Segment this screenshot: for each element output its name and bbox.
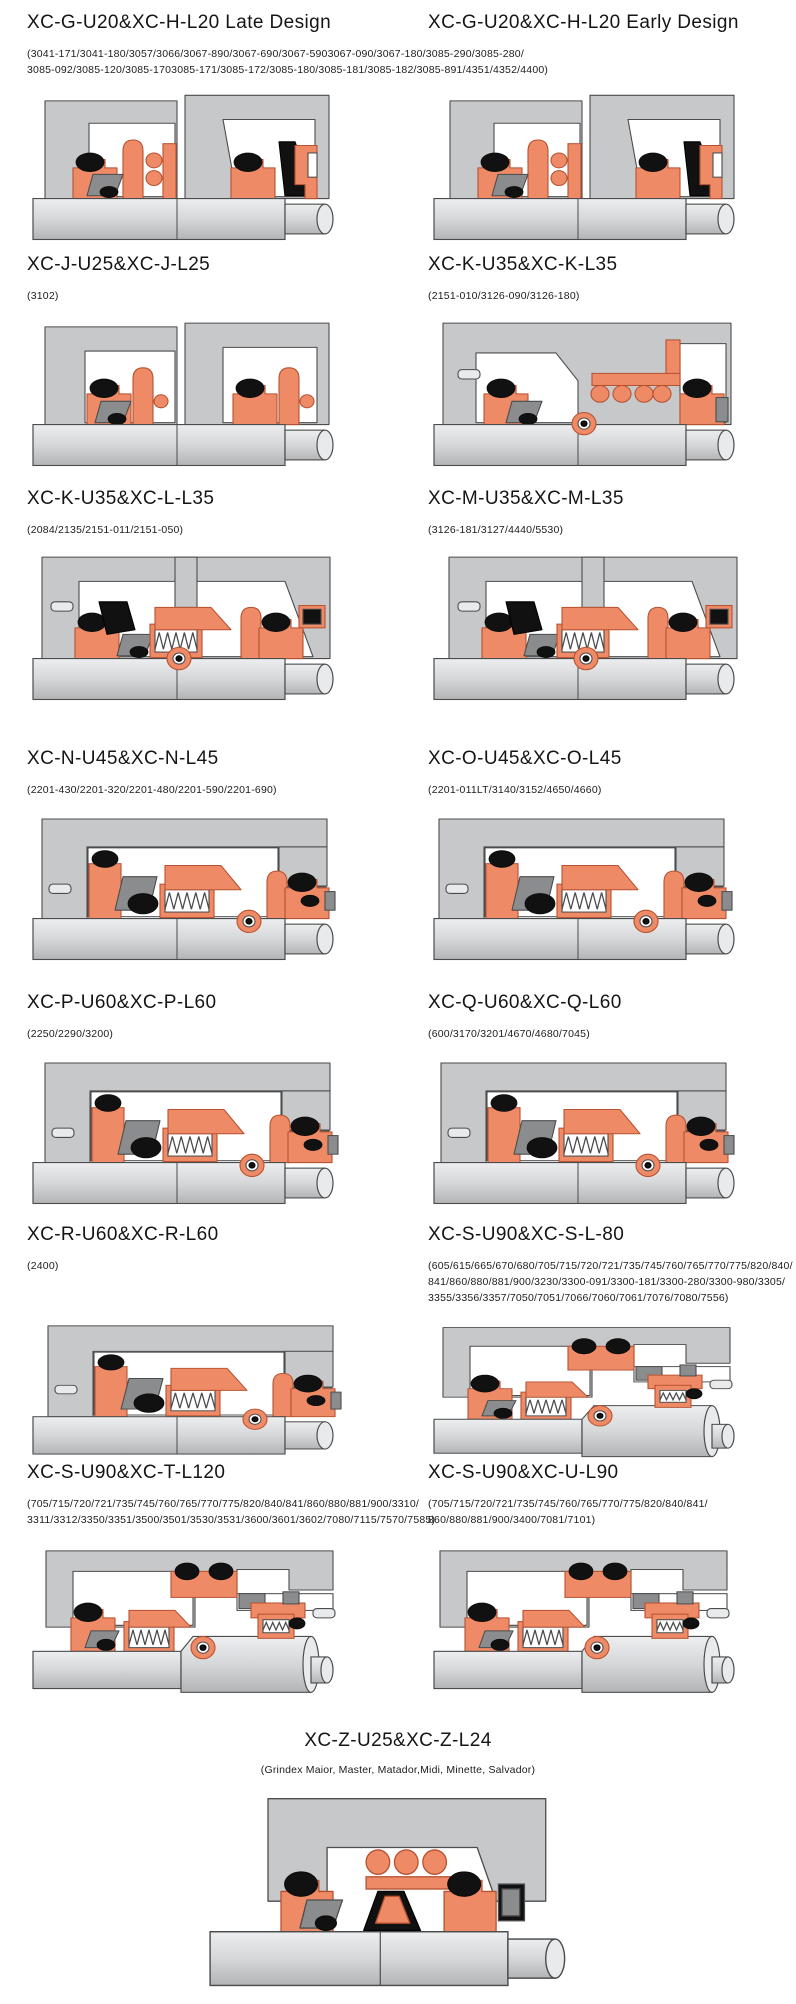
panel-title: XC-G-U20&XC-H-L20 Late Design: [27, 12, 407, 34]
seal-cross-section-diagram: [27, 546, 357, 706]
panel-title: XC-S-U90&XC-U-L90: [428, 1462, 796, 1484]
panel-title: XC-J-U25&XC-J-L25: [27, 254, 407, 276]
panel-part-numbers: (2201-430/2201-320/2201-480/2201-590/220…: [27, 782, 407, 798]
part-numbers-line: (Grindex Maior, Master, Matador,Midi, Mi…: [0, 1762, 796, 1778]
part-numbers-line: (2400): [27, 1258, 407, 1274]
panel-part-numbers: (2201-011LT/3140/3152/4650/4660): [428, 782, 796, 798]
panel-part-numbers: (605/615/665/670/680/705/715/720/721/735…: [428, 1258, 796, 1306]
seal-cross-section-diagram: [428, 86, 758, 246]
panel-title: XC-N-U45&XC-N-L45: [27, 748, 407, 770]
panel-part-numbers: (3041-171/3041-180/3057/3066/3067-890/30…: [27, 46, 407, 78]
seal-panel-right: XC-O-U45&XC-O-L45(2201-011LT/3140/3152/4…: [428, 748, 796, 966]
panel-title: XC-G-U20&XC-H-L20 Early Design: [428, 12, 796, 34]
seal-cross-section-diagram: [428, 312, 758, 472]
part-numbers-line: 3311/3312/3350/3351/3500/3501/3530/3531/…: [27, 1512, 407, 1528]
seal-cross-section-diagram: [27, 86, 357, 246]
seal-panel-left: XC-N-U45&XC-N-L45(2201-430/2201-320/2201…: [27, 748, 407, 966]
seal-panel-right: XC-S-U90&XC-U-L90(705/715/720/721/735/74…: [428, 1462, 796, 1696]
seal-cross-section-diagram: [428, 1536, 758, 1696]
part-numbers-line: (3041-171/3041-180/3057/3066/3067-890/30…: [27, 46, 407, 62]
panel-part-numbers: (2084/2135/2151-011/2151-050): [27, 522, 407, 538]
part-numbers-line: 3355/3356/3357/7050/7051/7066/7060/7061/…: [428, 1290, 796, 1306]
part-numbers-line: 3085-092/3085-120/3085-1703085-171/3085-…: [27, 62, 407, 78]
part-numbers-line: (2201-011LT/3140/3152/4650/4660): [428, 782, 796, 798]
panel-title: XC-P-U60&XC-P-L60: [27, 992, 407, 1014]
part-numbers-line: (3102): [27, 288, 407, 304]
seal-cross-section-diagram: [428, 806, 758, 966]
panel-part-numbers: (2400): [27, 1258, 407, 1306]
panel-part-numbers: (2151-010/3126-090/3126-180): [428, 288, 796, 304]
part-numbers-line: (605/615/665/670/680/705/715/720/721/735…: [428, 1258, 796, 1274]
panel-part-numbers: (705/715/720/721/735/745/760/765/770/775…: [428, 1496, 796, 1528]
panel-title: XC-Z-U25&XC-Z-L24: [0, 1730, 796, 1752]
part-numbers-line: (3126-181/3127/4440/5530): [428, 522, 796, 538]
seal-cross-section-diagram: [428, 1314, 758, 1460]
seal-cross-section-diagram: [428, 1050, 758, 1210]
panel-title: XC-R-U60&XC-R-L60: [27, 1224, 407, 1246]
panel-title: XC-K-U35&XC-L-L35: [27, 488, 407, 510]
seal-panel-left: XC-J-U25&XC-J-L25(3102): [27, 254, 407, 472]
panel-part-numbers: [428, 46, 796, 78]
seal-cross-section-diagram: [203, 1784, 593, 1994]
seal-panel-left: XC-P-U60&XC-P-L60(2250/2290/3200): [27, 992, 407, 1210]
seal-panel-left: XC-S-U90&XC-T-L120(705/715/720/721/735/7…: [27, 1462, 407, 1696]
seal-panel-right: XC-M-U35&XC-M-L35(3126-181/3127/4440/553…: [428, 488, 796, 706]
part-numbers-line: (2250/2290/3200): [27, 1026, 407, 1042]
part-numbers-line: (2201-430/2201-320/2201-480/2201-590/220…: [27, 782, 407, 798]
seal-cross-section-diagram: [27, 1314, 357, 1460]
footer-seal-panel: XC-Z-U25&XC-Z-L24(Grindex Maior, Master,…: [0, 1730, 796, 1994]
panel-title: XC-S-U90&XC-S-L-80: [428, 1224, 796, 1246]
part-numbers-line: 860/880/881/900/3400/7081/7101): [428, 1512, 796, 1528]
seal-panel-left: XC-K-U35&XC-L-L35(2084/2135/2151-011/215…: [27, 488, 407, 706]
seal-panel-right: XC-K-U35&XC-K-L35(2151-010/3126-090/3126…: [428, 254, 796, 472]
seal-cross-section-diagram: [27, 1536, 357, 1696]
seal-panel-left: XC-R-U60&XC-R-L60(2400): [27, 1224, 407, 1460]
panel-title: XC-Q-U60&XC-Q-L60: [428, 992, 796, 1014]
part-numbers-line: (2084/2135/2151-011/2151-050): [27, 522, 407, 538]
seal-panel-left: XC-G-U20&XC-H-L20 Late Design(3041-171/3…: [27, 12, 407, 246]
seal-cross-section-diagram: [27, 806, 357, 966]
panel-title: XC-M-U35&XC-M-L35: [428, 488, 796, 510]
panel-part-numbers: (3126-181/3127/4440/5530): [428, 522, 796, 538]
panel-title: XC-S-U90&XC-T-L120: [27, 1462, 407, 1484]
seal-cross-section-diagram: [27, 312, 357, 472]
seal-panel-right: XC-S-U90&XC-S-L-80(605/615/665/670/680/7…: [428, 1224, 796, 1460]
part-numbers-line: (705/715/720/721/735/745/760/765/770/775…: [27, 1496, 407, 1512]
panel-part-numbers: (Grindex Maior, Master, Matador,Midi, Mi…: [0, 1762, 796, 1778]
seal-panel-right: XC-G-U20&XC-H-L20 Early Design: [428, 12, 796, 246]
seal-cross-section-diagram: [27, 1050, 357, 1210]
panel-part-numbers: (600/3170/3201/4670/4680/7045): [428, 1026, 796, 1042]
seal-panel-right: XC-Q-U60&XC-Q-L60(600/3170/3201/4670/468…: [428, 992, 796, 1210]
part-numbers-line: (600/3170/3201/4670/4680/7045): [428, 1026, 796, 1042]
seal-catalog-page: XC-G-U20&XC-H-L20 Late Design(3041-171/3…: [0, 0, 796, 2004]
panel-part-numbers: (2250/2290/3200): [27, 1026, 407, 1042]
panel-title: XC-O-U45&XC-O-L45: [428, 748, 796, 770]
panel-part-numbers: (3102): [27, 288, 407, 304]
part-numbers-line: 841/860/880/881/900/3230/3300-091/3300-1…: [428, 1274, 796, 1290]
part-numbers-line: (705/715/720/721/735/745/760/765/770/775…: [428, 1496, 796, 1512]
seal-cross-section-diagram: [428, 546, 758, 706]
panel-title: XC-K-U35&XC-K-L35: [428, 254, 796, 276]
part-numbers-line: (2151-010/3126-090/3126-180): [428, 288, 796, 304]
panel-part-numbers: (705/715/720/721/735/745/760/765/770/775…: [27, 1496, 407, 1528]
